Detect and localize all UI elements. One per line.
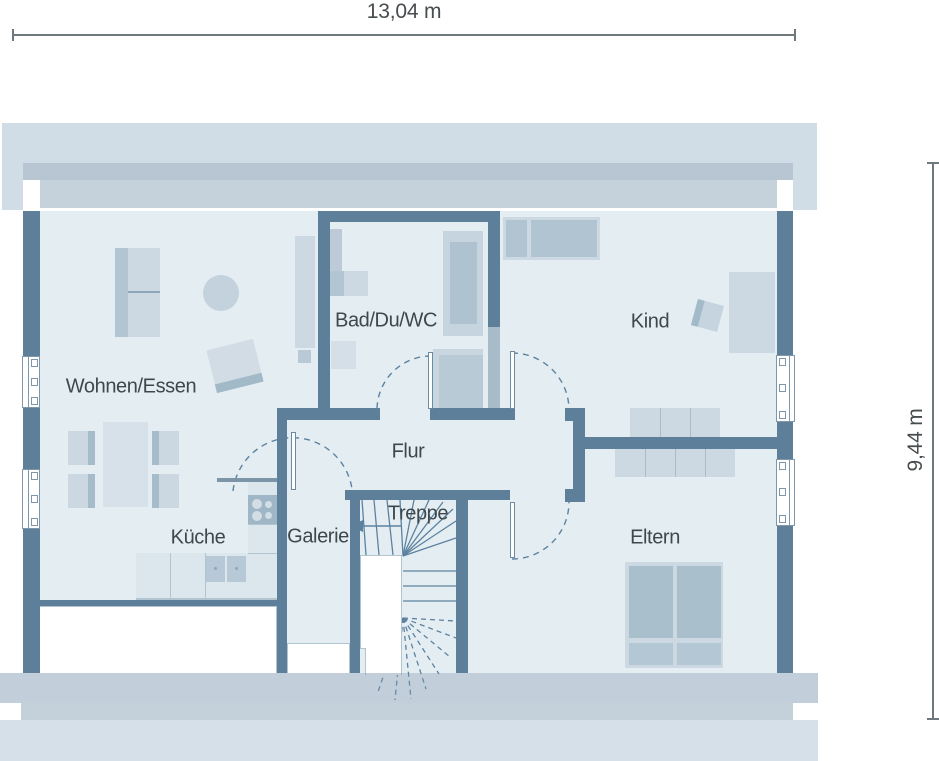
room-label-flur: Flur <box>392 441 425 464</box>
wall-exterior-right <box>777 211 793 673</box>
room-label-kueche: Küche <box>171 527 226 550</box>
door-swing-bad <box>377 356 431 410</box>
wall-bath-right <box>488 211 500 327</box>
stairwell-void <box>360 555 402 649</box>
door-leaf-kind <box>510 351 515 409</box>
eaves-band-bottom-a <box>0 673 818 703</box>
floor-plan: 13,04 m 9,44 m <box>0 0 939 761</box>
door-leaf-bad <box>428 352 433 409</box>
wall-stairwell-left <box>350 500 360 673</box>
window-left-upper <box>22 356 40 408</box>
room-label-treppe: Treppe <box>388 503 448 526</box>
wall-kitchen-south <box>40 600 277 606</box>
wall-exterior-left <box>23 211 40 673</box>
room-label-wohnen-essen: Wohnen/Essen <box>66 376 196 399</box>
eaves-band-bottom-c <box>0 720 818 761</box>
wall-galerie-divider <box>277 420 287 673</box>
wall-bath-right-lower <box>488 327 500 410</box>
window-right-kind <box>776 355 795 422</box>
wall-flur-east <box>573 408 585 502</box>
wall-corridor-north-left <box>277 408 380 420</box>
stairwell-void-lower <box>365 648 402 675</box>
wall-stairwell-right <box>456 500 468 673</box>
room-label-galerie: Galerie <box>287 526 349 549</box>
door-leaf-galerie <box>291 432 296 490</box>
window-left-lower <box>22 469 40 529</box>
wall-eltern-door-jamb <box>565 489 585 502</box>
door-leaf-eltern <box>510 502 515 558</box>
room-label-bad: Bad/Du/WC <box>335 310 437 333</box>
door-swing-kind <box>512 353 569 410</box>
void-opening <box>40 606 277 673</box>
room-label-eltern: Eltern <box>630 527 680 550</box>
window-right-eltern <box>776 459 795 526</box>
wall-corridor-south <box>345 490 510 500</box>
counter-return-edge <box>217 478 277 482</box>
wall-kind-eltern-divider <box>585 437 777 449</box>
void-opening-galerie <box>287 643 350 673</box>
wall-bath-left <box>318 211 330 410</box>
room-label-kind: Kind <box>631 311 669 334</box>
wall-bath-top <box>318 211 500 222</box>
door-swing-eltern <box>512 502 569 559</box>
eaves-band-bottom-b <box>21 703 793 720</box>
wall-corridor-north-mid <box>430 408 515 420</box>
